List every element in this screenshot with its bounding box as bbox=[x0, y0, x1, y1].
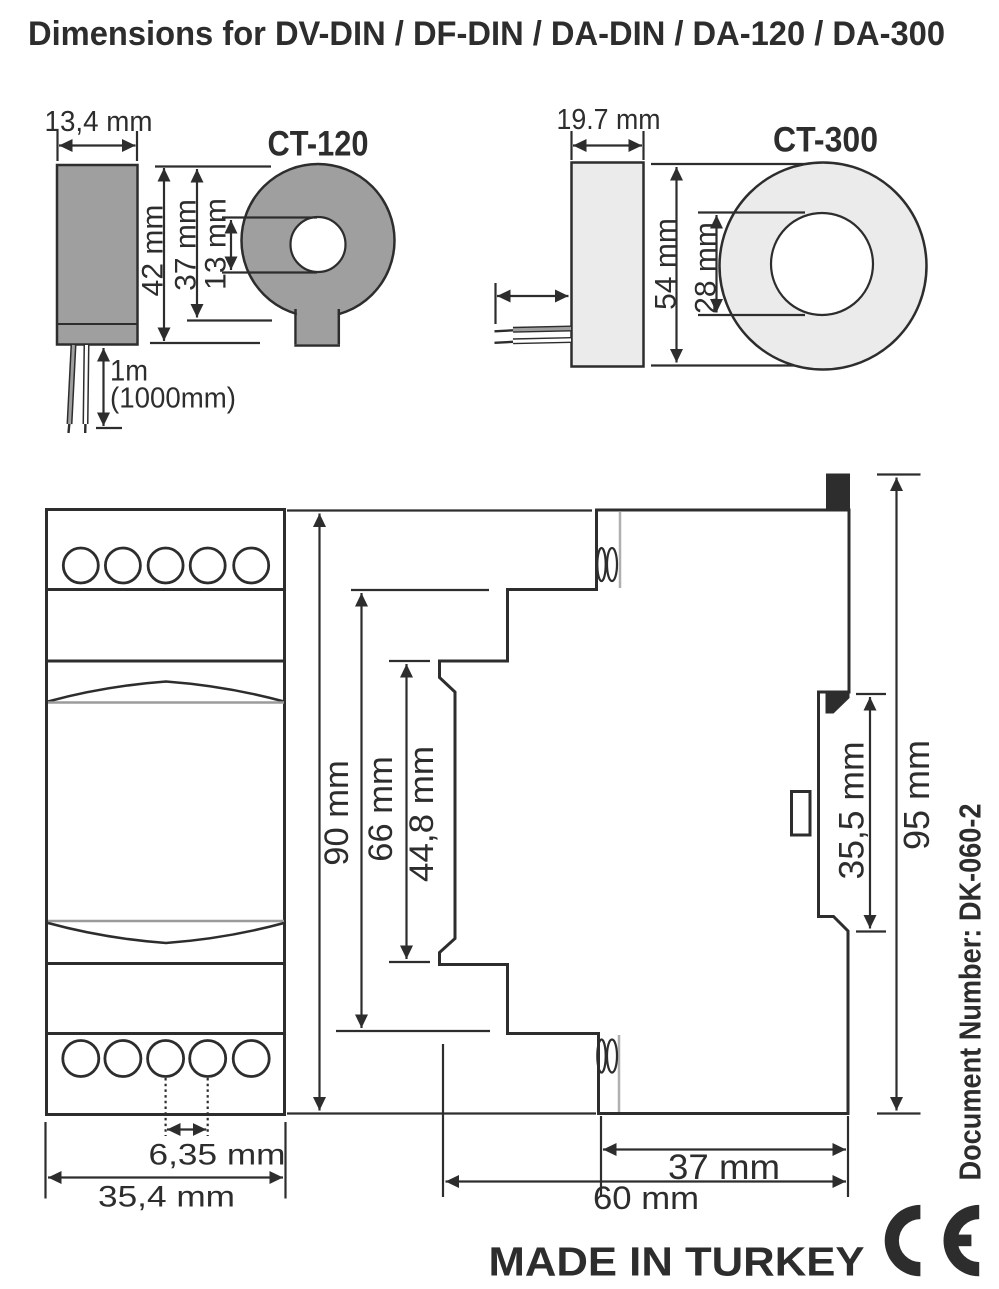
svg-text:42 mm: 42 mm bbox=[137, 205, 170, 297]
svg-text:95 mm: 95 mm bbox=[896, 740, 937, 850]
svg-text:CT-300: CT-300 bbox=[773, 121, 878, 160]
svg-text:66 mm: 66 mm bbox=[362, 756, 400, 861]
svg-text:6,35 mm: 6,35 mm bbox=[149, 1139, 286, 1172]
svg-text:54 mm: 54 mm bbox=[650, 218, 683, 310]
svg-text:(1000mm): (1000mm) bbox=[110, 383, 236, 415]
svg-text:CT-120: CT-120 bbox=[268, 125, 369, 164]
svg-text:60 mm: 60 mm bbox=[593, 1180, 699, 1216]
svg-text:35,4 mm: 35,4 mm bbox=[98, 1181, 235, 1214]
svg-text:Dimensions for DV-DIN / DF-DIN: Dimensions for DV-DIN / DF-DIN / DA-DIN … bbox=[28, 15, 945, 53]
svg-text:90 mm: 90 mm bbox=[318, 760, 356, 865]
svg-text:44,8 mm: 44,8 mm bbox=[403, 746, 441, 882]
svg-text:Document Number: DK-060-2: Document Number: DK-060-2 bbox=[953, 804, 988, 1181]
svg-text:13 mm: 13 mm bbox=[200, 198, 233, 290]
svg-text:35,5 mm: 35,5 mm bbox=[832, 742, 872, 880]
svg-text:28 mm: 28 mm bbox=[690, 222, 723, 314]
svg-text:MADE IN TURKEY: MADE IN TURKEY bbox=[489, 1239, 865, 1285]
svg-text:37 mm: 37 mm bbox=[170, 199, 203, 291]
